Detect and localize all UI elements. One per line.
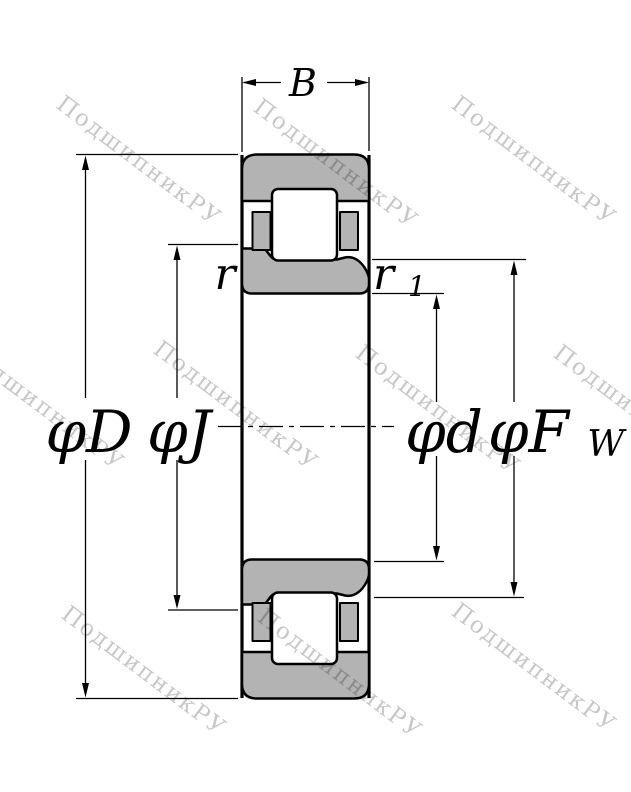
watermark-text: ПодшипникРУ: [446, 91, 621, 232]
cage-bar-bottom-right: [340, 603, 358, 641]
arrow-bore-up: [433, 295, 440, 310]
arrow-phij-up: [174, 246, 181, 261]
bearing-drawing-page: B φD φJ φd φF W: [0, 0, 631, 792]
cage-bar-top-right: [340, 212, 358, 250]
label-r1-main: r: [373, 249, 397, 300]
label-phiJ: φJ: [147, 398, 214, 466]
arrow-b-left: [242, 79, 256, 86]
arrow-bore-down: [433, 546, 440, 561]
watermark-text: ПодшипникРУ: [446, 598, 621, 739]
bearing-diagram-svg: B φD φJ φd φF W: [0, 0, 631, 792]
label-phiFw-subscript: W: [587, 424, 627, 465]
label-r1-subscript: 1: [408, 270, 426, 303]
cage-bar-top-left: [253, 212, 271, 250]
arrow-fw-down: [511, 582, 518, 597]
watermark-text: ПодшипникРУ: [51, 91, 226, 232]
arrow-b-right: [355, 79, 369, 86]
arrow-phid-down: [82, 683, 89, 698]
label-r: r: [214, 249, 238, 300]
watermark-text: ПодшипникРУ: [56, 601, 231, 742]
arrow-fw-up: [511, 261, 518, 276]
label-B: B: [288, 61, 317, 105]
label-r1: r 1: [373, 249, 426, 303]
arrow-phij-down: [174, 595, 181, 609]
roller-top: [272, 189, 337, 261]
arrow-phid-up: [82, 156, 89, 171]
